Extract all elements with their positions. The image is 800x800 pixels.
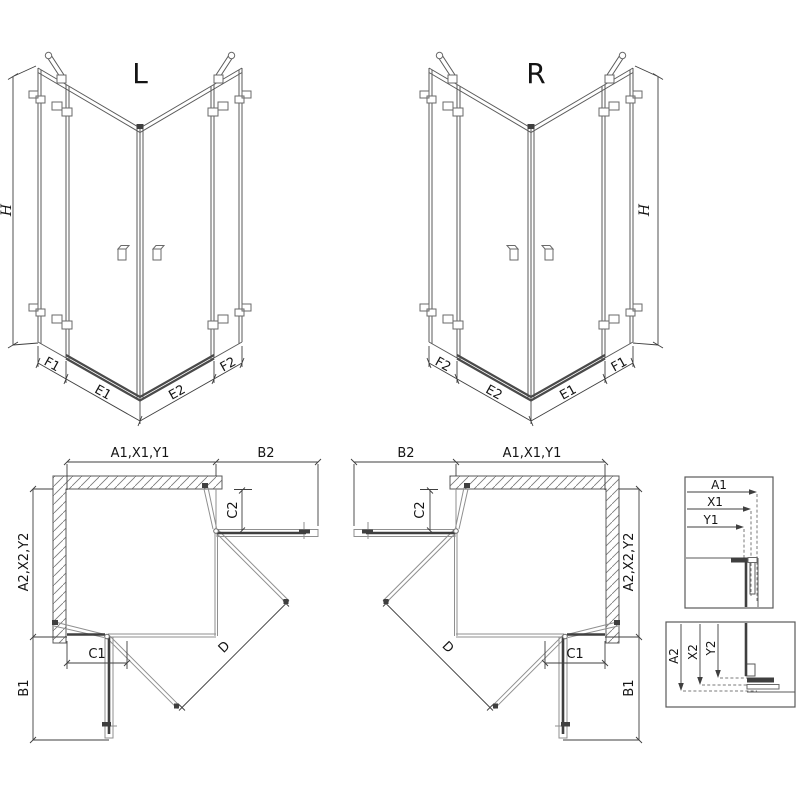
detail-label-a2: A2 [667, 648, 681, 664]
dim-label-d: D [216, 639, 234, 657]
dim-label-e2: E2 [166, 382, 188, 403]
dim-label-c2: C2 [413, 501, 428, 518]
dim-label-d: D [439, 639, 457, 657]
detail-box-width: A1 X1 Y1 [685, 477, 773, 608]
detail-label-y2: Y2 [704, 641, 718, 657]
iso-view-left: L H F1 E1 E2 F2 [0, 52, 251, 426]
plan-view-left: A1,X1,Y1 B2 A2,X2,Y2 B1 C2 C1 D [17, 446, 321, 743]
dim-label-height-left: H [0, 203, 15, 217]
arrowheads [678, 670, 721, 691]
detail-box-border [666, 622, 795, 707]
version-title-right: R [526, 57, 545, 90]
wall-hatched [450, 476, 619, 643]
detail-box-border [685, 477, 773, 608]
dim-label-e1: E1 [557, 382, 579, 403]
dim-label-c2: C2 [226, 501, 241, 518]
detail-box-height: A2 X2 Y2 [666, 622, 795, 707]
dim-label-f1: F1 [41, 355, 62, 376]
arrowheads [736, 489, 757, 530]
profile-clamp [747, 678, 774, 683]
dim-label-f1: F1 [609, 355, 630, 376]
wall-hatched [53, 476, 222, 643]
profile-clamp-outline [748, 558, 757, 563]
dim-label-a2x2y2: A2,X2,Y2 [17, 533, 32, 592]
profile-clamp [731, 558, 748, 563]
version-title-left: L [132, 57, 148, 90]
drawing-canvas: L H F1 E1 E2 F2 R H F2 E2 E1 F1 A1,X1,Y1… [0, 0, 800, 800]
detail-label-a1: A1 [711, 478, 727, 492]
detail-label-x1: X1 [707, 495, 723, 509]
dim-label-f2: F2 [432, 355, 453, 376]
dim-label-b1: B1 [17, 679, 32, 696]
detail-label-y1: Y1 [703, 513, 719, 527]
dim-label-b2: B2 [397, 446, 414, 461]
detail-label-x2: X2 [686, 644, 700, 660]
dim-label-a1x1y1: A1,X1,Y1 [503, 446, 562, 461]
dim-label-a2x2y2: A2,X2,Y2 [622, 533, 637, 592]
profile-clamp-outline [747, 685, 779, 690]
dim-label-b2: B2 [257, 446, 274, 461]
dim-label-b1: B1 [622, 679, 637, 696]
dim-label-e1: E1 [92, 382, 114, 403]
dim-label-f2: F2 [218, 355, 239, 376]
dim-label-a1x1y1: A1,X1,Y1 [111, 446, 170, 461]
dim-label-height-right: H [637, 203, 653, 217]
shower-enclosure-technical-drawing: L H F1 E1 E2 F2 R H F2 E2 E1 F1 A1,X1,Y1… [0, 0, 800, 800]
iso-view-right: R H F2 E2 E1 F1 [420, 52, 663, 426]
dim-label-c1: C1 [566, 647, 583, 662]
plan-view-right: B2 A1,X1,Y1 A2,X2,Y2 B1 C2 C1 D [351, 446, 642, 743]
dim-label-e2: E2 [483, 382, 505, 403]
dim-label-c1: C1 [88, 647, 105, 662]
